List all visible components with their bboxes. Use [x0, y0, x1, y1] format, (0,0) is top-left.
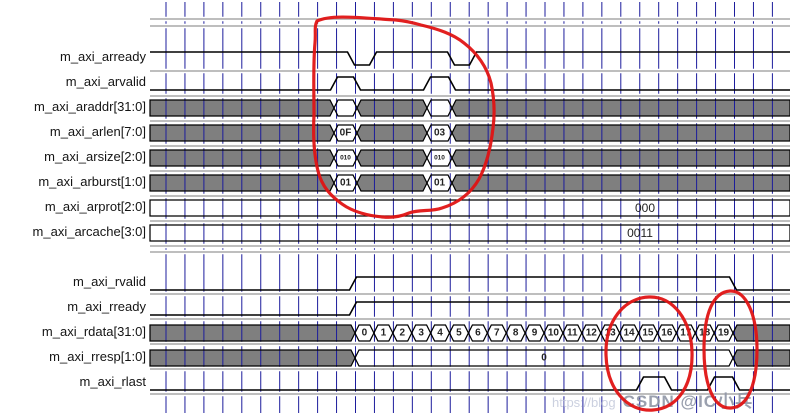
svg-text:0: 0: [541, 353, 547, 364]
svg-text:19: 19: [718, 328, 730, 339]
signal-label-m-axi-rresp10[interactable]: m_axi_rresp[1:0]: [0, 347, 146, 367]
svg-text:6: 6: [475, 328, 481, 339]
wave-m_axi_rready[interactable]: [150, 302, 790, 315]
signal-label-m-axi-arlen70[interactable]: m_axi_arlen[7:0]: [0, 122, 146, 142]
svg-text:16: 16: [661, 328, 673, 339]
signal-label-m-axi-rvalid[interactable]: m_axi_rvalid: [0, 272, 146, 292]
svg-text:000: 000: [635, 201, 655, 215]
svg-text:5: 5: [456, 328, 462, 339]
svg-text:03: 03: [434, 128, 446, 139]
svg-text:11: 11: [567, 328, 578, 339]
signal-label-m-axi-rdata310[interactable]: m_axi_rdata[31:0]: [0, 322, 146, 342]
bus-fill-layer: [150, 100, 790, 366]
signal-label-m-axi-araddr310[interactable]: m_axi_araddr[31:0]: [0, 97, 146, 117]
wave-m_axi_rlast[interactable]: [150, 377, 790, 390]
signal-label-m-axi-rlast[interactable]: m_axi_rlast: [0, 372, 146, 392]
signal-label-m-axi-arprot20[interactable]: m_axi_arprot[2:0]: [0, 197, 146, 217]
svg-text:2: 2: [399, 328, 405, 339]
svg-text:1: 1: [381, 328, 387, 339]
svg-text:010: 010: [434, 155, 445, 162]
svg-text:01: 01: [340, 178, 352, 189]
wave-m_axi_arready[interactable]: [150, 52, 790, 65]
svg-text:0: 0: [362, 328, 368, 339]
svg-text:010: 010: [340, 155, 351, 162]
signal-label-m-axi-arsize20[interactable]: m_axi_arsize[2:0]: [0, 147, 146, 167]
svg-text:17: 17: [680, 328, 692, 339]
svg-text:01: 01: [434, 178, 446, 189]
svg-text:10: 10: [548, 328, 560, 339]
svg-text:7: 7: [494, 328, 500, 339]
svg-text:9: 9: [532, 328, 538, 339]
svg-text:14: 14: [623, 328, 635, 339]
svg-text:0011: 0011: [627, 226, 653, 240]
signal-name-column: m_axi_arreadym_axi_arvalidm_axi_araddr[3…: [0, 0, 146, 414]
svg-text:12: 12: [586, 328, 598, 339]
svg-text:15: 15: [642, 328, 654, 339]
svg-text:13: 13: [605, 328, 617, 339]
signal-label-m-axi-arready[interactable]: m_axi_arready: [0, 47, 146, 67]
signal-label-m-axi-arcache30[interactable]: m_axi_arcache[3:0]: [0, 222, 146, 242]
svg-text:8: 8: [513, 328, 519, 339]
signal-label-m-axi-arburst10[interactable]: m_axi_arburst[1:0]: [0, 172, 146, 192]
signal-label-m-axi-arvalid[interactable]: m_axi_arvalid: [0, 72, 146, 92]
svg-text:0F: 0F: [340, 128, 352, 139]
wave-m_axi_rvalid[interactable]: [150, 277, 790, 290]
waveform-viewer: 0F03010010010100000110123456789101112131…: [0, 0, 790, 414]
wave-m_axi_arvalid[interactable]: [150, 77, 790, 90]
signal-label-m-axi-rready[interactable]: m_axi_rready: [0, 297, 146, 317]
svg-text:18: 18: [699, 328, 711, 339]
svg-text:4: 4: [437, 328, 443, 339]
svg-text:3: 3: [418, 328, 424, 339]
